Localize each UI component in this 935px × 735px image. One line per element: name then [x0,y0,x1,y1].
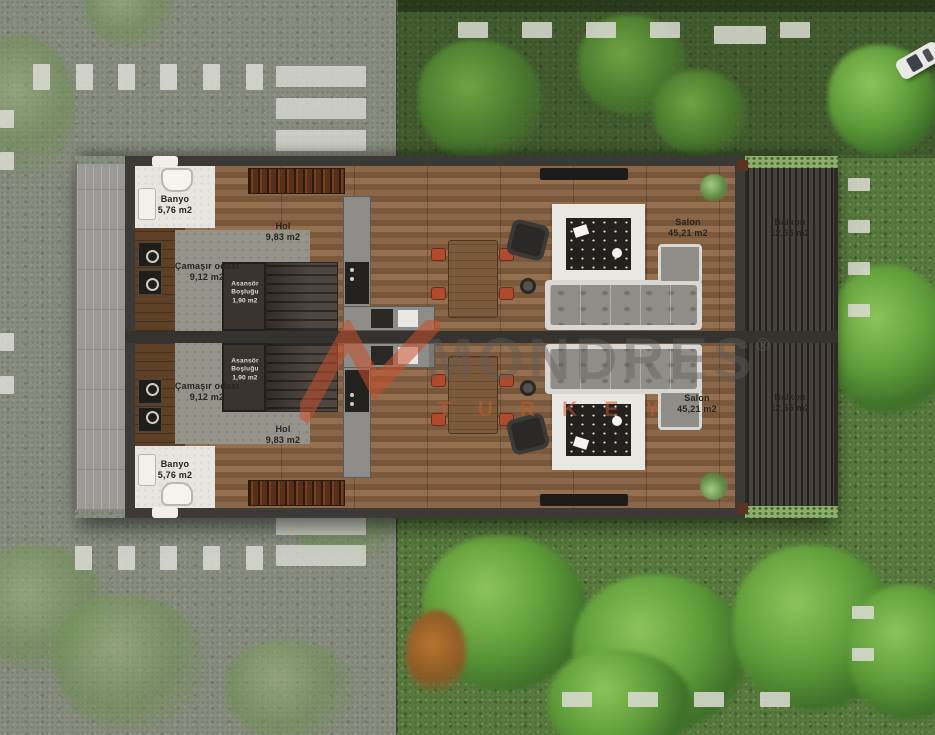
balcony-deck [745,168,838,331]
staircase [266,343,338,412]
parking-marking [848,304,870,317]
room-label-camasir-top: Çamaşır odası 9,12 m2 [175,261,239,284]
area-rug [552,204,645,284]
car-rear-window [922,48,935,63]
kitchen-sink [397,346,419,365]
room-label-asansor-top: Asansör Boşluğu 1,90 m2 [231,280,258,305]
washing-machine [138,242,162,267]
car-windshield [906,54,924,73]
wardrobe-cabinet [248,168,345,194]
dining-chair [431,287,446,300]
parking-marking [760,692,790,707]
unit-bottom [135,343,735,508]
road-marking-dash [0,376,14,394]
washing-machine [138,407,162,432]
room-label-hol-top: Hol 9,83 m2 [266,221,300,244]
parking-marking [848,262,870,275]
tv-unit [540,494,628,506]
room-name: Salon [677,393,717,404]
hedge [745,506,838,518]
road-marking-dash [203,546,220,570]
sofa [545,344,702,394]
room-label-salon-bottom: Salon 45,21 m2 [677,393,717,416]
unit-top [135,166,735,331]
crosswalk-stripe [276,545,366,566]
room-name: Banyo [158,459,192,470]
road-marking-dash [160,546,177,570]
oven [345,370,369,412]
dining-chair [499,374,514,387]
dining-chair [431,413,446,426]
parking-marking [562,692,592,707]
room-area: 9,83 m2 [266,232,300,243]
room-name: Çamaşır odası [175,381,239,392]
tree [418,40,543,160]
balcony-deck [745,343,838,506]
hedge [745,156,838,168]
room-area: 12,55 m2 [770,228,810,239]
room-name: Çamaşır odası [175,261,239,272]
dishwasher [371,346,393,365]
tree [828,265,935,415]
site-plan: Banyo 5,76 m2 Çamaşır odası 9,12 m2 Hol … [0,0,935,735]
room-area: 5,76 m2 [158,205,192,216]
room-label-asansor-bottom: Asansör Boşluğu 1,90 m2 [231,357,258,382]
road-marking-dash [203,64,220,90]
dryer-machine [138,270,162,295]
room-name: Asansör [231,357,258,365]
parking-marking [848,178,870,191]
plate [612,248,622,258]
road-marking-dash [118,64,135,90]
oven [345,262,369,304]
unit-furniture [135,166,735,331]
kitchen-sink [397,309,419,328]
tree [653,70,748,155]
armchair [505,412,551,456]
room-name: Hol [266,221,300,232]
road-marking-dash [246,546,263,570]
parking-marking [650,22,680,38]
room-area: 12,55 m2 [770,403,810,414]
room-area: 9,83 m2 [266,435,300,446]
parking-marking [780,22,810,38]
room-name2: Boşluğu [231,289,258,297]
parking-marking [694,692,724,707]
parking-marking [714,26,766,44]
party-wall [125,331,838,343]
tree [85,0,175,45]
area-rug [552,390,645,470]
planter-box [737,503,748,514]
room-name: Balkon [770,392,810,403]
crosswalk-stripe [276,66,366,87]
room-area: 9,12 m2 [175,392,239,403]
room-name2: Boşluğu [231,366,258,374]
room-area: 1,90 m2 [231,374,258,382]
dryer-machine [138,379,162,404]
room-label-banyo-bottom: Banyo 5,76 m2 [158,459,192,482]
coffee-table [566,218,631,270]
bathtub [161,482,193,506]
washbasin [138,188,156,220]
potted-plant [700,174,728,202]
room-area: 45,21 m2 [668,228,708,239]
road-marking-dash [160,64,177,90]
dining-table [448,240,498,318]
parking-marking [458,22,488,38]
room-name: Asansör [231,280,258,288]
road-marking-dash [246,64,263,90]
dining-table [448,356,498,434]
sofa-cushions [550,349,697,389]
parking-marking [628,692,658,707]
room-area: 5,76 m2 [158,470,192,481]
road-marking-dash [0,333,14,351]
floor-lamp [520,380,536,396]
plate [612,416,622,426]
planter-box [737,160,748,171]
wardrobe-cabinet [248,480,345,506]
road-marking-dash [75,546,92,570]
road-marking-dash [76,64,93,90]
room-label-hol-bottom: Hol 9,83 m2 [266,424,300,447]
washbasin [138,454,156,486]
tree [55,595,205,730]
crosswalk-stripe [276,130,366,151]
potted-plant [700,472,728,500]
floor-lamp [520,278,536,294]
room-label-balkon-bottom: Balkon 12,55 m2 [770,392,810,415]
room-label-camasir-bottom: Çamaşır odası 9,12 m2 [175,381,239,404]
tv-unit [540,168,628,180]
room-name: Salon [668,217,708,228]
dining-chair [499,287,514,300]
room-area: 1,90 m2 [231,297,258,305]
dishwasher [371,309,393,328]
road-marking-dash [0,152,14,170]
crosswalk-stripe [276,98,366,119]
parking-marking [852,648,874,661]
entrance-deck [75,164,125,510]
staircase [266,262,338,331]
unit-furniture [135,343,735,508]
parking-marking [586,22,616,38]
tree [225,640,355,735]
chaise-lounge [658,244,702,284]
entry-door [152,507,178,518]
room-name: Banyo [158,194,192,205]
garden-edge [398,0,935,12]
room-label-salon-top: Salon 45,21 m2 [668,217,708,240]
building: Banyo 5,76 m2 Çamaşır odası 9,12 m2 Hol … [75,156,838,518]
parking-marking [848,220,870,233]
room-name: Hol [266,424,300,435]
sofa-cushions [550,285,697,325]
parking-marking [852,606,874,619]
room-label-banyo-top: Banyo 5,76 m2 [158,194,192,217]
bush [406,610,466,695]
dining-chair [431,248,446,261]
room-name: Balkon [770,217,810,228]
road-marking-dash [0,110,14,128]
dining-chair [431,374,446,387]
room-label-balkon-top: Balkon 12,55 m2 [770,217,810,240]
room-area: 9,12 m2 [175,272,239,283]
parking-marking [522,22,552,38]
entry-door [152,156,178,167]
road-marking-dash [118,546,135,570]
room-area: 45,21 m2 [677,404,717,415]
sofa [545,280,702,330]
coffee-table [566,404,631,456]
bathtub [161,168,193,192]
road-marking-dash [33,64,50,90]
